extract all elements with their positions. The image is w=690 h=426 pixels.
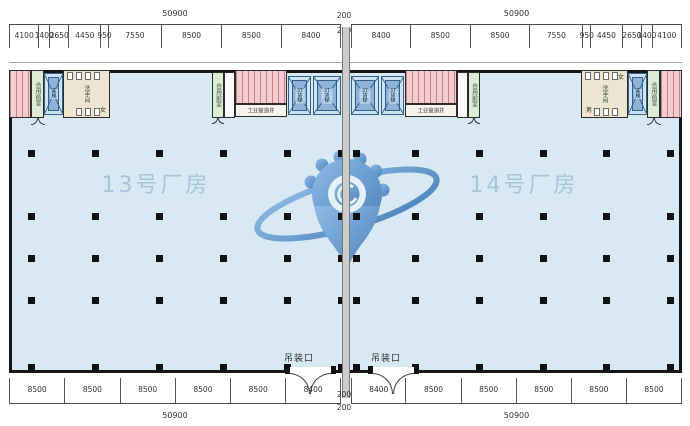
dim-bottom-left-segment: 8500 bbox=[9, 378, 64, 403]
dim-top-right-row: 84008500850075509504450265014004100 bbox=[351, 25, 682, 48]
column-dot bbox=[28, 364, 35, 371]
toilet-fixture bbox=[76, 108, 82, 116]
column-dot bbox=[156, 213, 163, 220]
shared-lobby-label: 合用前室 bbox=[650, 82, 657, 106]
elevator-shaft: 3T货梯 bbox=[313, 76, 341, 115]
building-label-13: 13号厂房 bbox=[100, 167, 212, 199]
dim-top-left-value: 7550 bbox=[125, 31, 144, 40]
dim-top-right-value: 8500 bbox=[431, 31, 450, 40]
dim-top-right-value: 8400 bbox=[371, 31, 390, 40]
shared-lobby: 合用前室 bbox=[31, 70, 44, 118]
washroom-label: 洗手间 bbox=[601, 85, 608, 103]
column-dot bbox=[220, 213, 227, 220]
shared-lobby: 合用前室 bbox=[468, 72, 480, 118]
elevator-shaft: 3T货梯 bbox=[351, 76, 379, 115]
washroom-label: 洗手间 bbox=[83, 85, 90, 103]
dim-bottom-left-value: 8500 bbox=[193, 385, 212, 394]
female-label: 女 bbox=[100, 107, 106, 114]
dim-bottom-left-value: 8500 bbox=[83, 385, 102, 394]
column-dot bbox=[92, 297, 99, 304]
column-dot bbox=[476, 255, 483, 262]
dim-top-right-segment: 8400 bbox=[351, 25, 410, 48]
toilet-fixture bbox=[94, 108, 100, 116]
dim-bottom-right-value: 8400 bbox=[369, 385, 388, 394]
dim-top-total-right: 50900 bbox=[351, 8, 682, 19]
column-dot bbox=[540, 255, 547, 262]
column-dot bbox=[353, 150, 360, 157]
column-dot bbox=[353, 255, 360, 262]
dim-bottom-right-segment: 8400 bbox=[351, 378, 405, 403]
column-dot bbox=[353, 297, 360, 304]
column-dot bbox=[156, 150, 163, 157]
column-dot bbox=[476, 150, 483, 157]
shared-lobby: 合用前室 bbox=[212, 72, 224, 118]
column-dot bbox=[220, 297, 227, 304]
toilet-fixture bbox=[76, 72, 82, 80]
shared-lobby-label: 合用前室 bbox=[471, 83, 478, 107]
dim-top-left-value: 2650 bbox=[50, 31, 69, 40]
stair-room bbox=[9, 70, 31, 118]
column-dot bbox=[353, 364, 360, 371]
dim-top-right-value: 4450 bbox=[597, 31, 616, 40]
column-dot bbox=[540, 213, 547, 220]
service-room bbox=[457, 72, 468, 118]
dim-top-right-segment: 4100 bbox=[652, 25, 682, 48]
expansion-joint bbox=[342, 27, 350, 398]
column-dot bbox=[28, 150, 35, 157]
dim-bottom-left-row: 850085008500850085008400 bbox=[9, 378, 341, 403]
pipe-shaft: 工业管道井 bbox=[235, 104, 287, 117]
dim-top-left-segment: 8500 bbox=[161, 25, 221, 48]
column-dot bbox=[540, 150, 547, 157]
stair-room bbox=[235, 70, 287, 104]
dim-top-left-segment: 1400 bbox=[38, 25, 49, 48]
dim-top-right-segment: 7550 bbox=[529, 25, 582, 48]
toilet-fixture bbox=[85, 72, 91, 80]
column-dot bbox=[603, 213, 610, 220]
dim-bottom-right-value: 8500 bbox=[534, 385, 553, 394]
column-dot bbox=[412, 213, 419, 220]
dim-bottom-right-row: 840085008500850085008500 bbox=[351, 378, 682, 403]
dim-line-bottom-left bbox=[9, 403, 341, 404]
column-dot bbox=[156, 297, 163, 304]
dim-top-gap-upper: 200 bbox=[329, 11, 359, 21]
toilet-fixture bbox=[594, 72, 600, 80]
column-dot bbox=[156, 255, 163, 262]
door-jamb bbox=[331, 366, 336, 374]
dim-bottom-right-value: 8500 bbox=[479, 385, 498, 394]
dim-top-left-value: 8500 bbox=[182, 31, 201, 40]
column-dot bbox=[92, 364, 99, 371]
elevator-label: 3T货梯 bbox=[321, 88, 332, 103]
floor-plan-drawing: 50900 50900 200 200 41001400265044509507… bbox=[0, 0, 690, 426]
column-dot bbox=[603, 255, 610, 262]
column-dot bbox=[220, 364, 227, 371]
dim-bottom-total-right: 50900 bbox=[351, 410, 682, 421]
shared-lobby-label: 合用前室 bbox=[34, 82, 41, 106]
dim-top-left-row: 41001400265044509507550850085008400 bbox=[9, 25, 341, 48]
dim-top-right-segment: 8500 bbox=[410, 25, 470, 48]
elevator-shaft: 3T货梯 bbox=[288, 76, 311, 115]
shared-lobby-label: 合用前室 bbox=[215, 83, 222, 107]
dim-bottom-right-segment: 8500 bbox=[516, 378, 571, 403]
dim-bottom-right-segment: 8500 bbox=[461, 378, 516, 403]
door-jamb bbox=[414, 366, 419, 374]
column-dot bbox=[412, 255, 419, 262]
dim-bottom-left-segment: 8500 bbox=[175, 378, 230, 403]
column-dot bbox=[603, 364, 610, 371]
dim-top-right-segment: 4450 bbox=[590, 25, 622, 48]
column-dot bbox=[92, 150, 99, 157]
column-dot bbox=[28, 255, 35, 262]
column-dot bbox=[667, 297, 674, 304]
elevator-label: 客梯 bbox=[634, 89, 641, 99]
column-dot bbox=[353, 213, 360, 220]
dim-top-right-value: 4100 bbox=[657, 31, 676, 40]
dim-bottom-left-segment: 8500 bbox=[120, 378, 175, 403]
female-label: 女 bbox=[618, 74, 624, 81]
elevator-shaft: 客梯 bbox=[44, 73, 63, 115]
column-dot bbox=[476, 213, 483, 220]
dim-top-left-value: 8400 bbox=[301, 31, 320, 40]
pipe-shaft-label: 工业管道井 bbox=[417, 106, 444, 114]
dim-top-left-segment: 2650 bbox=[49, 25, 68, 48]
dim-top-right-segment: 1400 bbox=[641, 25, 652, 48]
male-label: 男 bbox=[586, 107, 592, 114]
column-dot bbox=[28, 213, 35, 220]
column-dot bbox=[220, 255, 227, 262]
toilet-fixture bbox=[612, 108, 618, 116]
column-dot bbox=[603, 150, 610, 157]
dim-top-right-segment: 8500 bbox=[470, 25, 530, 48]
dim-bottom-right-segment: 8500 bbox=[571, 378, 626, 403]
dim-bottom-right-segment: 8500 bbox=[405, 378, 460, 403]
column-dot bbox=[284, 255, 291, 262]
dim-bottom-left-value: 8500 bbox=[28, 385, 47, 394]
toilet-fixture bbox=[94, 72, 100, 80]
dim-bottom-left-value: 8500 bbox=[249, 385, 268, 394]
dim-top-right-segment: 950 bbox=[582, 25, 590, 48]
dim-top-left-value: 8500 bbox=[242, 31, 261, 40]
elevator-label: 3T货梯 bbox=[295, 88, 304, 103]
column-dot bbox=[284, 213, 291, 220]
column-dot bbox=[667, 364, 674, 371]
pipe-shaft-label: 工业管道井 bbox=[247, 106, 274, 114]
column-dot bbox=[540, 297, 547, 304]
column-dot bbox=[667, 213, 674, 220]
column-dot bbox=[540, 364, 547, 371]
pipe-shaft: 工业管道井 bbox=[405, 104, 457, 117]
service-room bbox=[224, 72, 235, 118]
dim-top-total-left: 50900 bbox=[9, 8, 341, 19]
dim-bottom-right-value: 8500 bbox=[644, 385, 663, 394]
toilet-fixture bbox=[594, 108, 600, 116]
dim-top-left-value: 4450 bbox=[75, 31, 94, 40]
toilet-fixture bbox=[85, 108, 91, 116]
dim-line-bottom-right bbox=[351, 403, 682, 404]
dim-bottom-left-segment: 8500 bbox=[230, 378, 285, 403]
elevator-label: 3T货梯 bbox=[359, 88, 370, 103]
building-label-14: 14号厂房 bbox=[468, 167, 580, 199]
column-dot bbox=[92, 213, 99, 220]
column-dot bbox=[476, 364, 483, 371]
dim-bottom-right-value: 8500 bbox=[424, 385, 443, 394]
dim-bottom-right-segment: 8500 bbox=[626, 378, 682, 403]
dim-top-left-segment: 8400 bbox=[281, 25, 341, 48]
toilet-fixture bbox=[612, 72, 618, 80]
hoist-opening-label-left: 吊装口 bbox=[271, 351, 327, 364]
column-dot bbox=[412, 297, 419, 304]
hoist-opening-label-right: 吊装口 bbox=[358, 351, 414, 364]
column-dot bbox=[28, 297, 35, 304]
dim-bottom-left-value: 8500 bbox=[138, 385, 157, 394]
dim-top-left-segment: 8500 bbox=[221, 25, 281, 48]
column-dot bbox=[92, 255, 99, 262]
column-dot bbox=[220, 150, 227, 157]
column-dot bbox=[667, 150, 674, 157]
column-dot bbox=[603, 297, 610, 304]
elevator-shaft: 客梯 bbox=[628, 73, 647, 115]
column-dot bbox=[412, 150, 419, 157]
toilet-fixture bbox=[585, 72, 591, 80]
stair-room bbox=[660, 70, 682, 118]
dim-bottom-right-value: 8500 bbox=[589, 385, 608, 394]
stair-room bbox=[405, 70, 457, 104]
dim-top-right-value: 7550 bbox=[547, 31, 566, 40]
dim-top-left-value: 4100 bbox=[15, 31, 34, 40]
column-dot bbox=[284, 150, 291, 157]
shared-lobby: 合用前室 bbox=[647, 70, 660, 118]
column-dot bbox=[156, 364, 163, 371]
dim-bottom-total-left: 50900 bbox=[9, 410, 341, 421]
dim-top-left-segment: 7550 bbox=[108, 25, 161, 48]
toilet-fixture bbox=[603, 72, 609, 80]
elevator-label: 3T货梯 bbox=[388, 88, 397, 103]
elevator-label: 客梯 bbox=[50, 89, 57, 99]
dim-top-right-value: 8500 bbox=[490, 31, 509, 40]
elevator-shaft: 3T货梯 bbox=[381, 76, 404, 115]
toilet-fixture bbox=[67, 72, 73, 80]
dim-top-left-segment: 950 bbox=[100, 25, 108, 48]
dim-bottom-left-segment: 8500 bbox=[64, 378, 119, 403]
dim-bottom-left-value: 8400 bbox=[304, 385, 323, 394]
dim-bottom-gap-upper: 200 bbox=[329, 390, 359, 400]
column-dot bbox=[476, 297, 483, 304]
toilet-fixture bbox=[603, 108, 609, 116]
column-dot bbox=[284, 297, 291, 304]
dim-top-left-segment: 4450 bbox=[68, 25, 100, 48]
column-dot bbox=[667, 255, 674, 262]
